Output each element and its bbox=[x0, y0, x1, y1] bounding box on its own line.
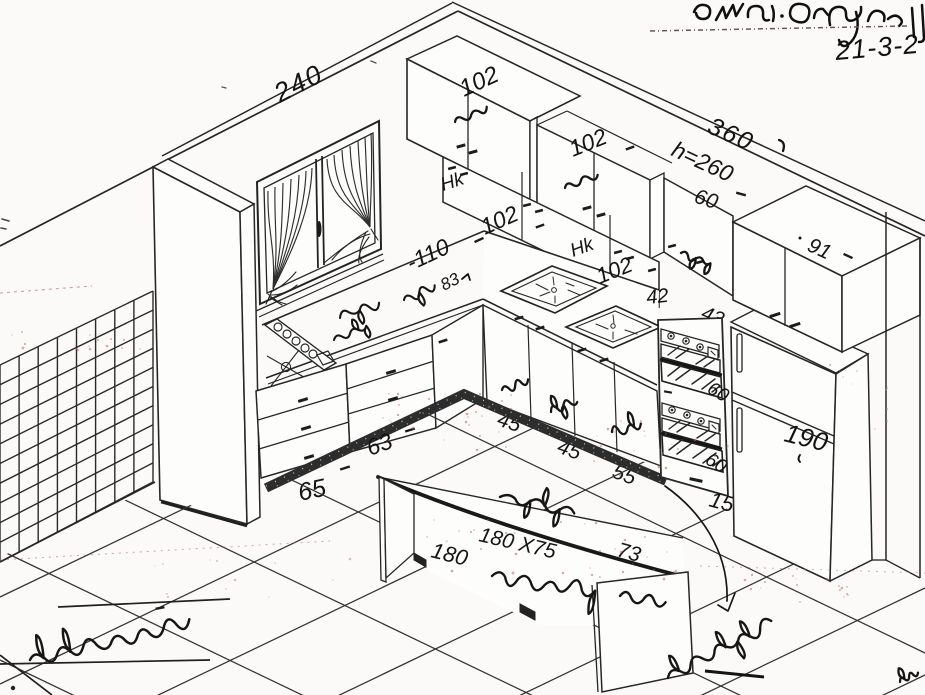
svg-text:42: 42 bbox=[645, 285, 669, 309]
